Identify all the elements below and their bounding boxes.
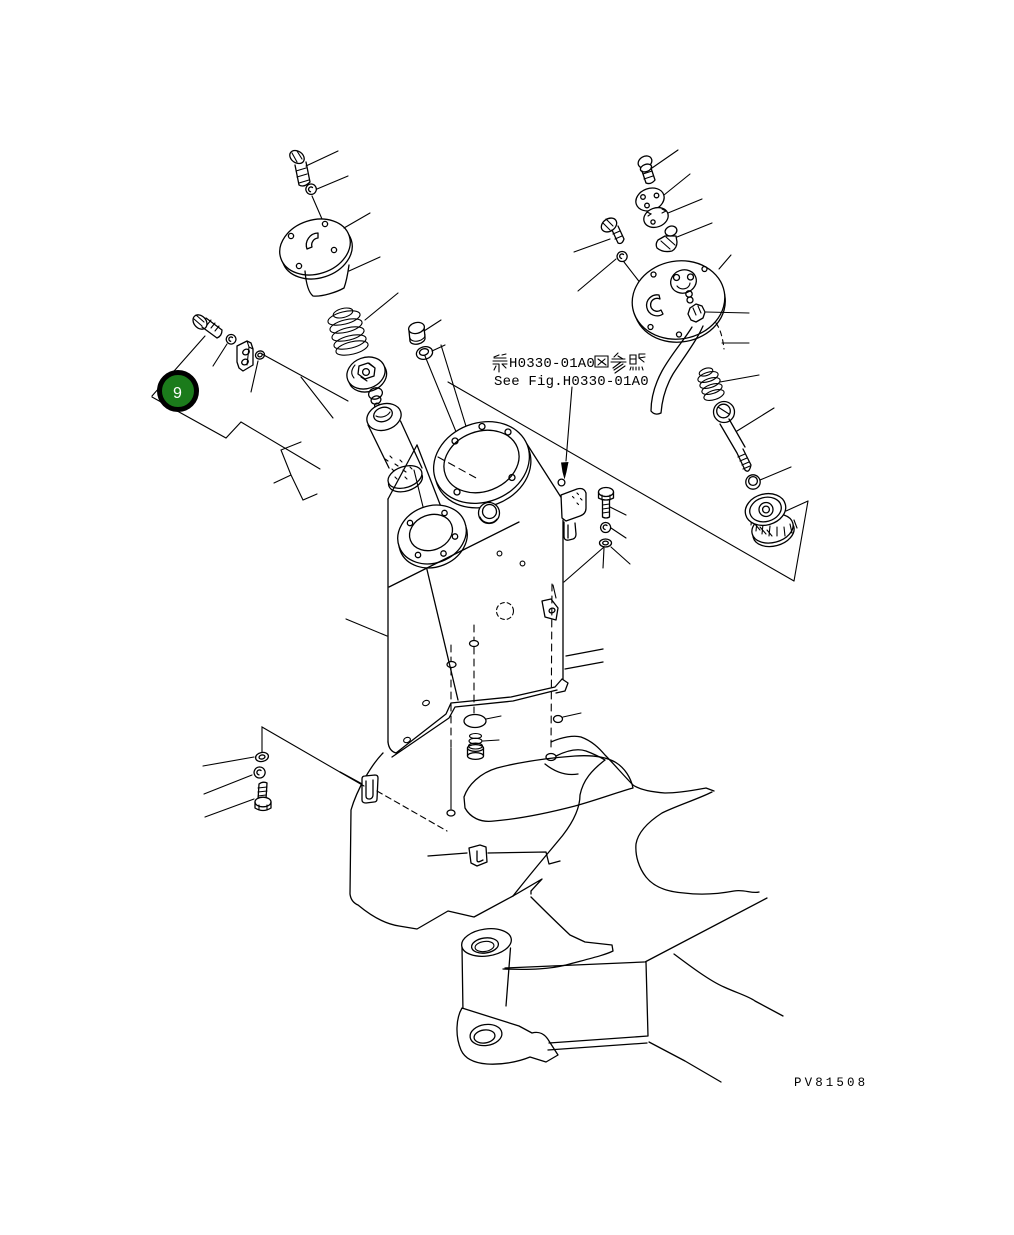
svg-text:9: 9 [173,385,182,402]
svg-text:PV81508: PV81508 [794,1076,868,1090]
svg-text:H0330-01A0: H0330-01A0 [509,356,595,372]
